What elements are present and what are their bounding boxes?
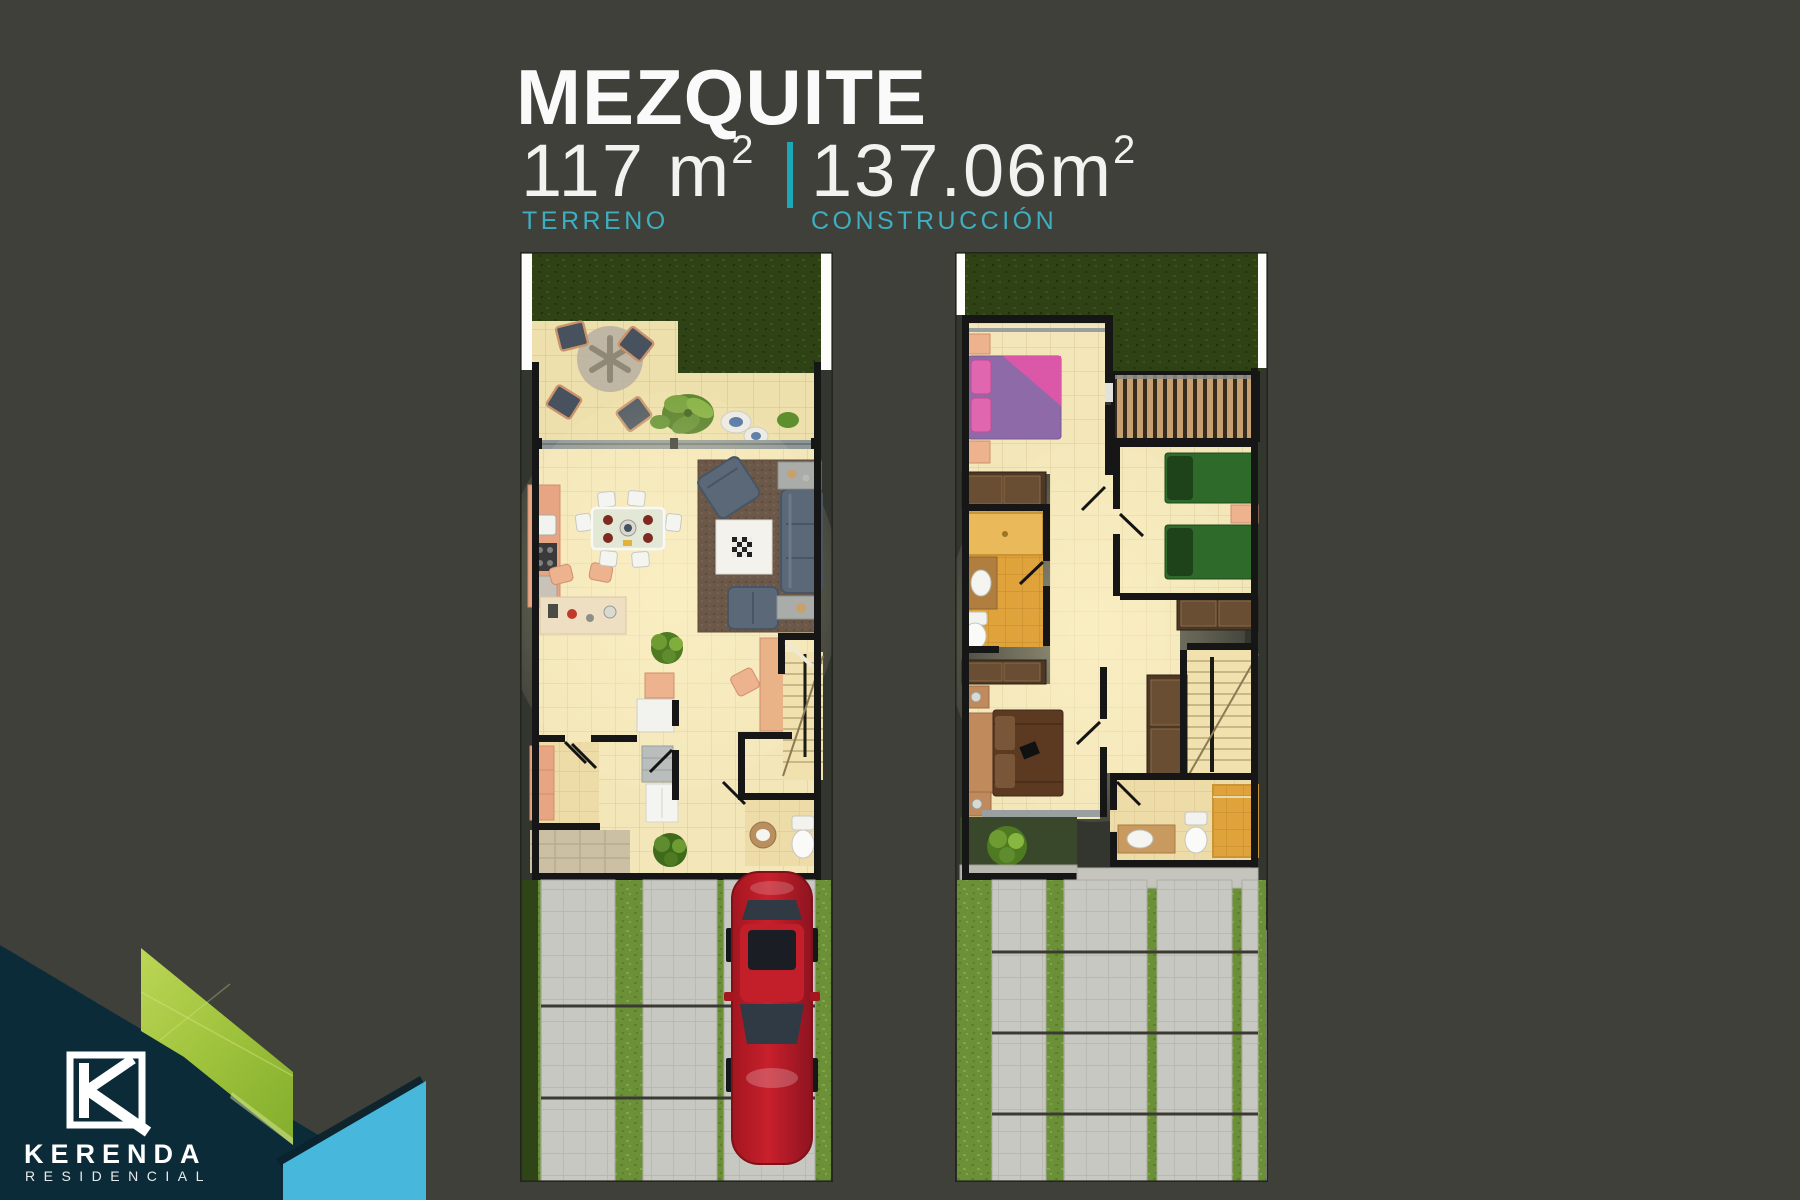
corner-brand-art — [0, 740, 520, 1200]
front-garden — [960, 817, 1077, 880]
brand-tagline: RESIDENCIAL — [25, 1168, 212, 1184]
chessboard — [732, 537, 752, 557]
half-bathroom — [745, 800, 821, 866]
bathroom-lower — [1110, 780, 1258, 860]
hall-plant — [651, 632, 683, 664]
upper-floor-plan — [955, 252, 1268, 1182]
construction-area-value: 137.06m2 — [811, 134, 1135, 208]
terrain-area-superscript: 2 — [731, 128, 753, 172]
ground-floor-plan — [520, 252, 833, 1182]
kids-bedroom — [1165, 452, 1258, 630]
side-strip-left — [521, 252, 532, 370]
red-car — [724, 872, 820, 1164]
laundry-room — [530, 742, 599, 823]
flyer-canvas: { "header": { "title": "MEZQUITE", "terr… — [0, 0, 1800, 1200]
living-room — [696, 455, 822, 632]
terrain-area-value: 117 m2 — [521, 134, 753, 208]
construction-label: CONSTRUCCIÓN — [811, 207, 1057, 236]
brand-name: KERENDA — [24, 1139, 207, 1170]
pergola-deck — [1113, 373, 1258, 440]
loveseat — [728, 587, 778, 629]
driveway — [957, 868, 1266, 1182]
porch-plant — [653, 833, 687, 867]
entry-porch — [530, 830, 630, 873]
bathroom-upper-left — [963, 511, 1043, 649]
side-strip-right — [821, 252, 832, 370]
construction-area-superscript: 2 — [1113, 128, 1135, 172]
construction-area-number: 137.06m — [811, 129, 1113, 212]
window — [1105, 383, 1113, 402]
terrain-label: TERRENO — [522, 207, 669, 236]
terrain-area-number: 117 m — [521, 129, 731, 212]
area-divider — [787, 142, 793, 208]
